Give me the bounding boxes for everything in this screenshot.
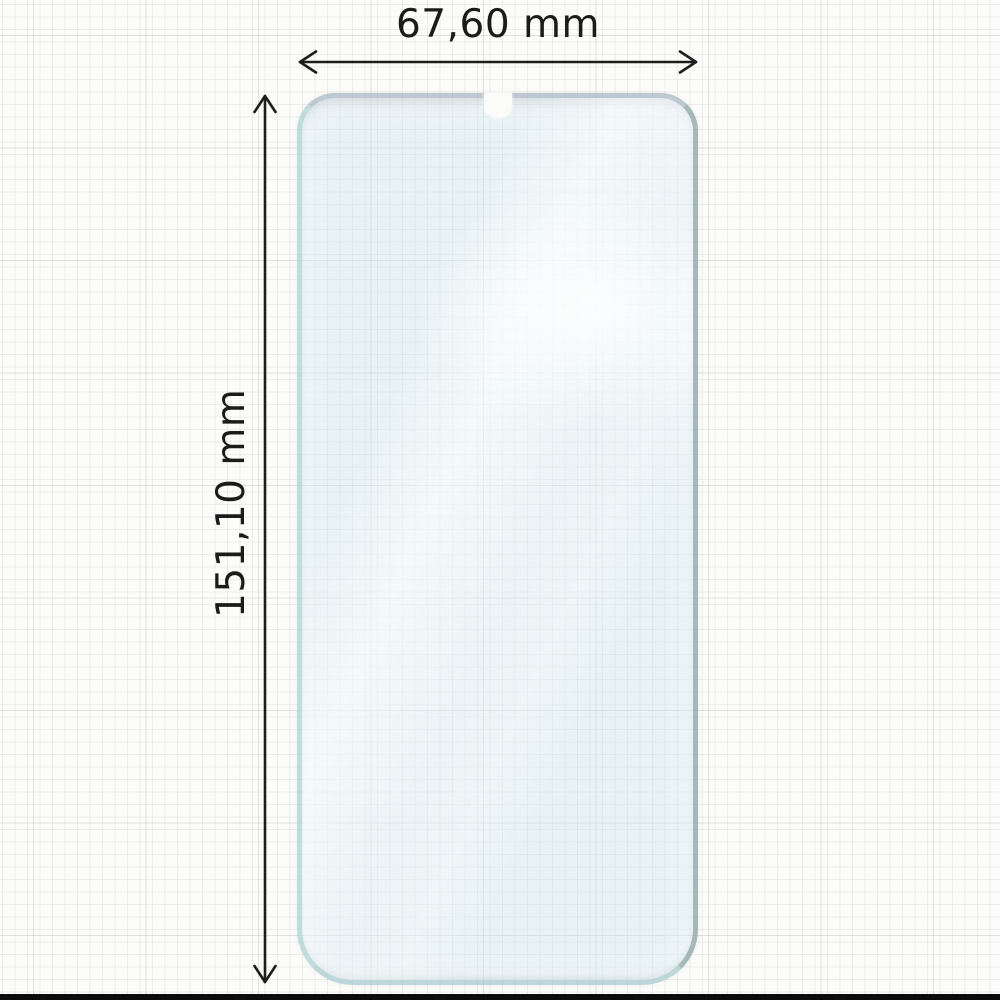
height-dimension-arrow [249, 86, 281, 992]
graph-paper-background: 67,60 mm 151,10 mm [0, 0, 1000, 1000]
waterdrop-notch-icon [484, 93, 512, 118]
screen-protector-film [297, 93, 698, 985]
photo-bottom-edge [0, 994, 1000, 1000]
width-dimension-label: 67,60 mm [288, 2, 708, 48]
film-reflection [302, 98, 693, 980]
width-dimension-arrow [290, 46, 706, 78]
